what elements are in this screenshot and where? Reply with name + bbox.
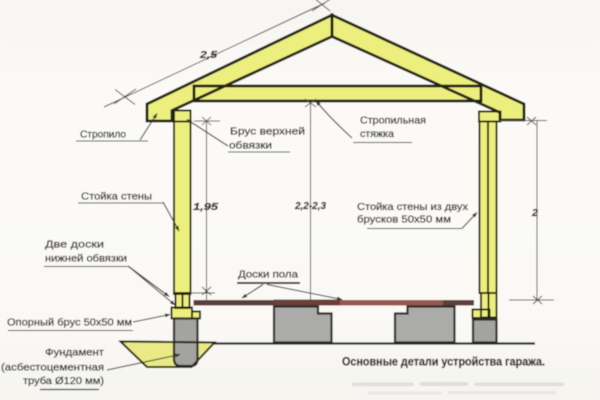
svg-text:Фундамент: Фундамент (45, 347, 104, 359)
svg-text:2,5: 2,5 (199, 49, 217, 61)
svg-text:2,2-2,3: 2,2-2,3 (294, 201, 326, 212)
svg-text:Две доски: Две доски (45, 239, 104, 251)
svg-text:Стропило: Стропило (80, 129, 126, 141)
svg-text:1,95: 1,95 (193, 202, 219, 213)
svg-text:Доски пола: Доски пола (238, 269, 298, 281)
svg-text:(асбестоцементная: (асбестоцементная (1, 362, 104, 374)
svg-text:Стойка стены: Стойка стены (81, 191, 152, 203)
svg-text:Брус верхней: Брус верхней (230, 126, 305, 138)
svg-text:труба Ø120 мм): труба Ø120 мм) (23, 375, 104, 387)
svg-text:Стропильная: Стропильная (360, 115, 426, 127)
svg-text:Основные детали устройства гар: Основные детали устройства гаража. (342, 355, 545, 369)
svg-text:Опорный брус 50х50 мм: Опорный брус 50х50 мм (7, 317, 132, 329)
svg-text:Стойка стены из двух: Стойка стены из двух (357, 201, 469, 213)
svg-text:стяжка: стяжка (360, 128, 394, 140)
svg-text:нижней обвязки: нижней обвязки (45, 253, 127, 265)
svg-text:2: 2 (531, 207, 538, 219)
svg-text:обвязки: обвязки (229, 140, 272, 152)
svg-text:брусков 50х50 мм: брусков 50х50 мм (357, 214, 451, 226)
